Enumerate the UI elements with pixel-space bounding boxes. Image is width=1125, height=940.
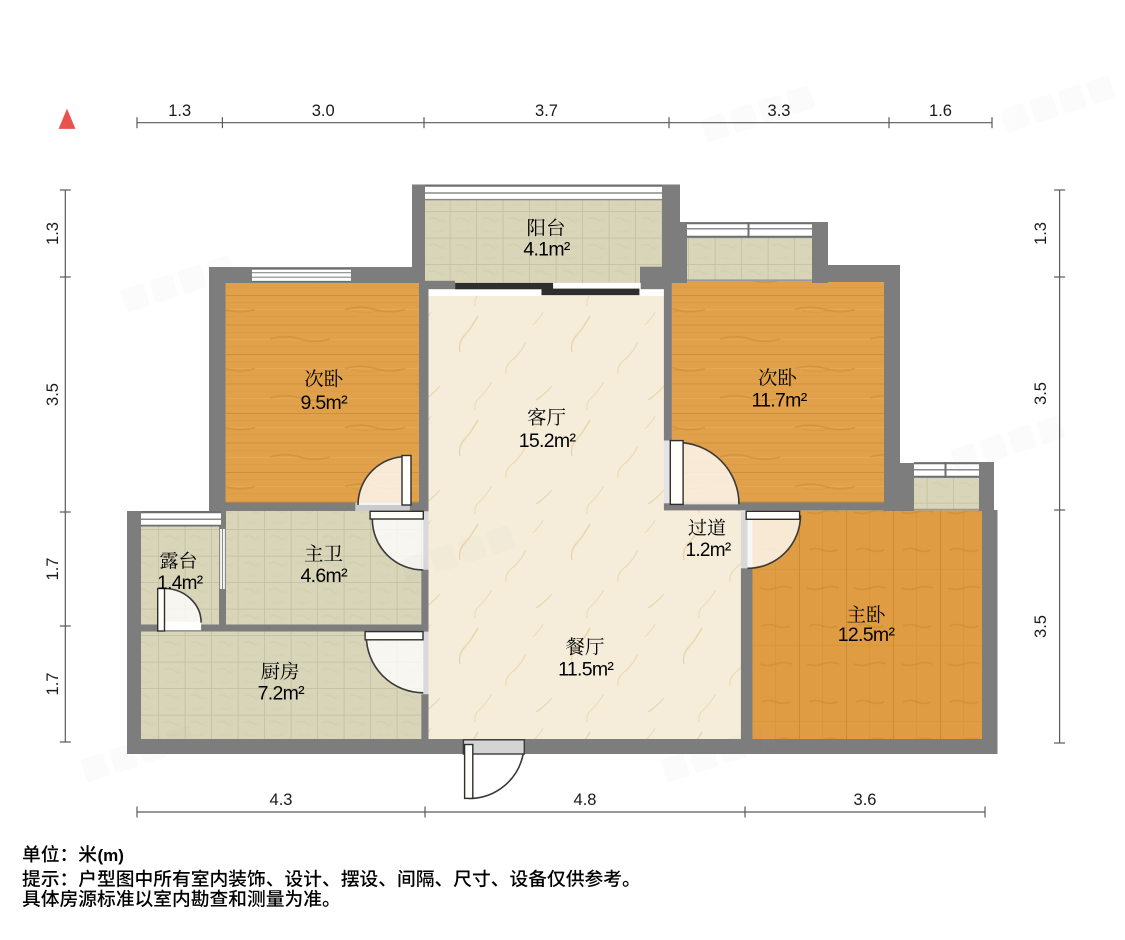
svg-text:1.6: 1.6	[929, 102, 952, 120]
svg-text:3.6: 3.6	[854, 791, 877, 809]
svg-text:4.3: 4.3	[270, 791, 293, 809]
svg-text:1.2m²: 1.2m²	[685, 540, 730, 561]
svg-text:3.7: 3.7	[535, 102, 558, 120]
svg-text:15.2m²: 15.2m²	[519, 430, 577, 452]
svg-text:3.0: 3.0	[312, 102, 335, 120]
svg-text:3.5: 3.5	[44, 383, 62, 406]
svg-text:1.3: 1.3	[44, 222, 62, 245]
svg-text:4.6m²: 4.6m²	[301, 565, 349, 587]
svg-text:11.5m²: 11.5m²	[558, 659, 614, 681]
svg-text:12.5m²: 12.5m²	[838, 624, 896, 646]
svg-text:1.7: 1.7	[44, 558, 62, 581]
svg-text:4.1m²: 4.1m²	[523, 239, 571, 261]
svg-text:3.5: 3.5	[1032, 615, 1050, 638]
svg-text:1.3: 1.3	[1032, 222, 1050, 245]
svg-text:4.8: 4.8	[574, 791, 597, 809]
svg-text:9.5m²: 9.5m²	[301, 392, 349, 414]
svg-text:3.5: 3.5	[1032, 382, 1050, 405]
svg-text:3.3: 3.3	[768, 102, 791, 120]
svg-text:1.4m²: 1.4m²	[157, 573, 202, 594]
svg-text:7.2m²: 7.2m²	[258, 683, 306, 705]
svg-text:(m): (m)	[98, 846, 124, 865]
svg-text:11.7m²: 11.7m²	[751, 390, 807, 412]
svg-text:1.3: 1.3	[168, 102, 191, 120]
svg-text:1.7: 1.7	[44, 673, 62, 696]
